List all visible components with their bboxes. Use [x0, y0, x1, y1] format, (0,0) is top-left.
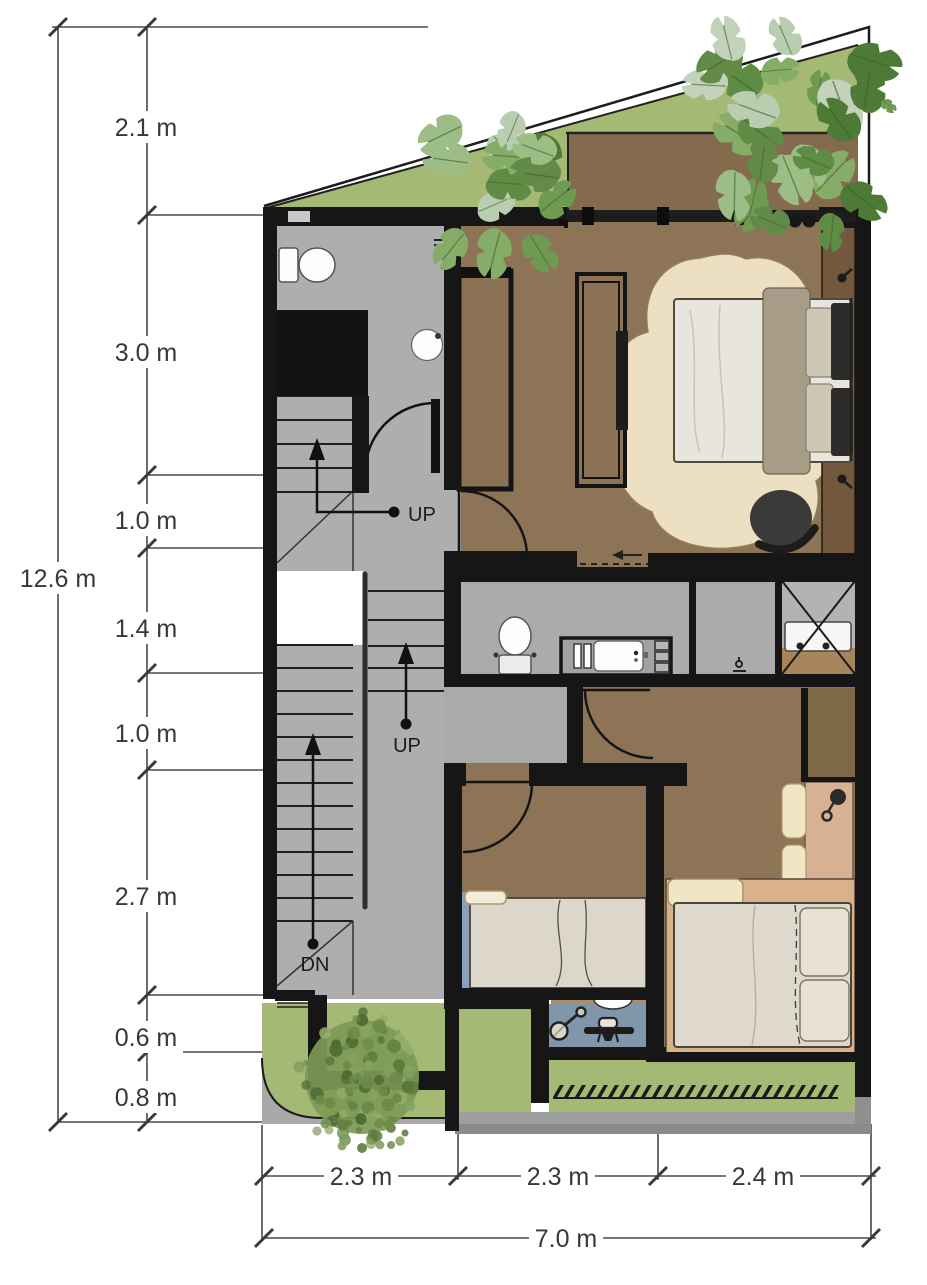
svg-text:3.0 m: 3.0 m: [115, 339, 178, 367]
svg-text:0.8 m: 0.8 m: [115, 1084, 178, 1112]
svg-text:1.0 m: 1.0 m: [115, 507, 178, 535]
svg-text:DN: DN: [301, 954, 330, 976]
svg-text:2.1 m: 2.1 m: [115, 114, 178, 142]
svg-text:2.3 m: 2.3 m: [527, 1163, 590, 1191]
svg-text:2.3 m: 2.3 m: [330, 1163, 393, 1191]
svg-text:2.7 m: 2.7 m: [115, 883, 178, 911]
svg-text:UP: UP: [393, 735, 421, 757]
svg-text:12.6 m: 12.6 m: [20, 565, 96, 593]
svg-text:1.0 m: 1.0 m: [115, 720, 178, 748]
svg-text:2.4 m: 2.4 m: [732, 1163, 795, 1191]
svg-text:1.4 m: 1.4 m: [115, 615, 178, 643]
svg-text:0.6 m: 0.6 m: [115, 1024, 178, 1052]
svg-text:7.0 m: 7.0 m: [535, 1225, 598, 1253]
svg-text:UP: UP: [408, 504, 436, 526]
